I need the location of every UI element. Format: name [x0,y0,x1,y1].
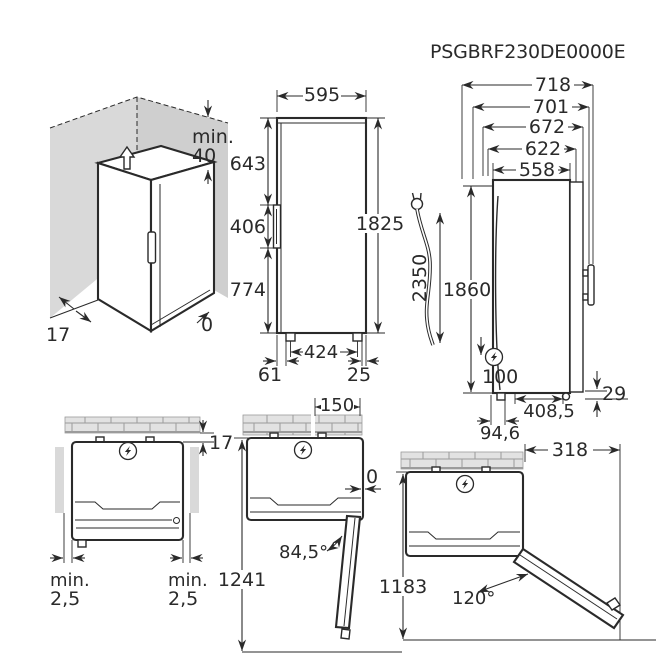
dim-wall-side-clearance: 150 [315,395,360,416]
dim-side-clearance-318: 318 [525,439,620,462]
handle-span-value: 406 [230,216,266,238]
front-foot-side [497,393,505,400]
depth-2-value: 701 [533,96,569,118]
depth-4-value: 622 [525,138,561,160]
dim-depth-5: 558 [493,159,570,181]
dim-top-to-handle: 643 [230,118,277,205]
rear-roller [563,393,570,400]
power-connection-icon [486,349,503,366]
plan-view-open-84: 150 84,5° 0 1241 [218,395,402,652]
dim-feet-spacing: 424 [291,341,358,363]
depth-3-value: 672 [529,116,565,138]
depth-5-value: 558 [519,159,555,181]
foot-right [353,333,362,341]
refrigerator-plan-open-120 [406,467,623,628]
foot-left [286,333,295,341]
rear-wall [65,417,200,433]
side-wall-left [55,447,64,513]
foot-right-value: 25 [347,364,371,386]
door-handle-side [588,265,594,305]
dim-front-bottom-offset: 94,6 [477,395,520,444]
side-gap-left-value: 2,5 [50,588,80,610]
width-value: 595 [304,84,340,106]
dim-side-height: 1860 [443,186,493,393]
dim-door-angle-84: 84,5° [279,536,342,563]
power-connection-icon [457,476,474,493]
side-gap-right-value: 2,5 [168,588,198,610]
power-cable: 2350 [409,193,440,345]
refrigerator-plan-closed [72,437,183,547]
open-door-84 [336,516,360,628]
dim-handle-span: 406 [230,205,273,248]
drawing-canvas: PSGBRF230DE0000E min. 40 17 [0,0,660,668]
front-view: 595 643 406 774 1825 [230,84,405,386]
door-handle-open-84 [341,629,350,639]
installation-drawing: PSGBRF230DE0000E min. 40 17 [0,0,660,668]
dim-handle-to-floor: 774 [230,248,277,333]
cable-length-value: 2350 [409,254,431,302]
dim-depth-3: 672 [483,116,583,138]
dim-depth-1: 718 [462,74,593,96]
dim-depth-2: 701 [473,96,589,118]
dim-width: 595 [277,84,366,112]
model-code: PSGBRF230DE0000E [430,41,625,63]
side-view: 718 701 672 622 558 [443,74,628,444]
power-connection-icon [295,442,312,459]
power-connection-icon [120,443,137,460]
dim-depth-4: 622 [488,138,576,160]
top-to-handle-value: 643 [230,153,266,175]
plan-view-open-120: 318 120° 1183 [379,439,656,640]
door-side [570,182,583,392]
top-clearance-value: 40 [192,145,216,167]
flush-gap-value: 0 [366,466,378,488]
plug-icon [412,199,423,210]
socket-offset-value: 100 [482,366,518,388]
dim-rear-bottom-gap: 29 [585,371,628,417]
side-clearance-value: 17 [46,324,70,346]
open-door-120 [514,549,623,628]
dim-foot-right: 25 [347,335,379,386]
cabinet-front [277,118,366,333]
base-depth-value: 408,5 [523,401,575,422]
dim-door-angle-120: 120° [452,574,528,609]
door-handle-3d [148,232,156,263]
door-angle-120-value: 120° [452,588,495,609]
rear-bottom-gap-value: 29 [602,383,626,405]
side-wall-right [190,447,199,513]
refrigerator-3d [98,146,214,331]
door-angle-84-value: 84,5° [279,542,328,563]
cabinet-side [493,180,570,393]
wall-side-clearance-value: 150 [320,395,354,416]
refrigerator-plan-open-84 [247,433,363,639]
rear-wall [243,415,362,435]
side-clearance-318-value: 318 [552,439,588,461]
handle-to-floor-value: 774 [230,279,266,301]
depth-required-84-value: 1241 [218,569,266,591]
depth-1-value: 718 [535,74,571,96]
plan-view-closed: 17 min. 2,5 min. 2,5 [50,417,233,610]
wall-gap-value: 17 [209,432,233,454]
dim-rear-clearance: 0 [197,312,213,336]
rear-clearance-value: 0 [201,314,213,336]
height-value: 1825 [356,213,404,235]
corner-3d-view: min. 40 17 0 [46,97,234,346]
front-bottom-offset-value: 94,6 [480,423,520,444]
foot-plan [78,540,86,547]
side-height-value: 1860 [443,279,491,301]
rear-wall [401,452,523,469]
dim-foot-left: 61 [258,335,299,386]
depth-required-120-value: 1183 [379,576,427,598]
feet-spacing-value: 424 [304,342,338,363]
foot-left-value: 61 [258,364,282,386]
